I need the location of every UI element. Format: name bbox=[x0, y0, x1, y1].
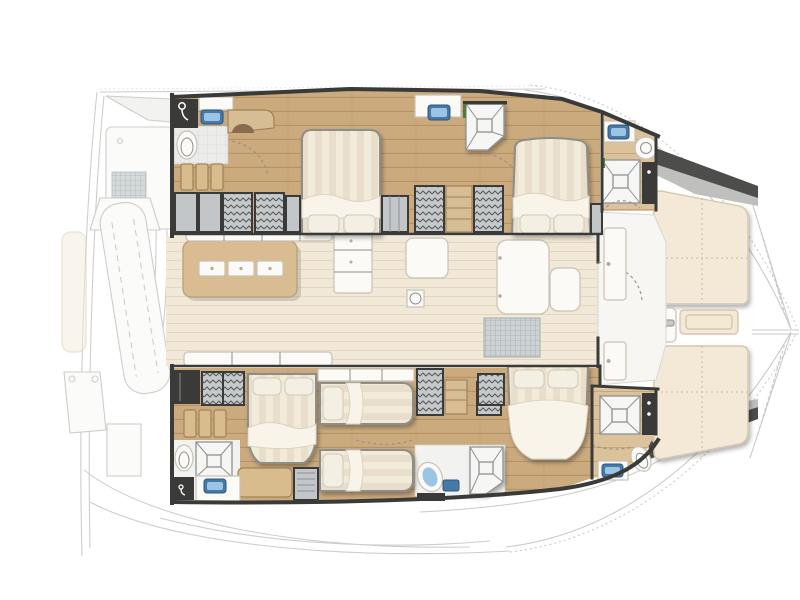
double-bed bbox=[302, 130, 380, 234]
pillow bbox=[323, 387, 343, 420]
port-hull bbox=[172, 366, 658, 503]
washbasin-bowl bbox=[611, 128, 626, 136]
shower-cabin bbox=[174, 99, 198, 128]
shelf-unit bbox=[446, 186, 472, 232]
hanging-locker bbox=[415, 186, 444, 232]
vanity-cabinet bbox=[199, 97, 233, 110]
sunpad-starboard bbox=[654, 191, 748, 304]
mirror bbox=[443, 480, 459, 491]
washbasin-bowl bbox=[431, 108, 447, 117]
shower-tray bbox=[602, 158, 640, 203]
stern-bench bbox=[62, 232, 86, 352]
dark-locker bbox=[174, 370, 200, 404]
pillow bbox=[308, 215, 339, 233]
transom-step-curve bbox=[160, 518, 490, 545]
toilet bbox=[635, 137, 657, 159]
locker bbox=[175, 193, 197, 232]
hanging-locker bbox=[417, 369, 443, 415]
side-locker bbox=[591, 204, 602, 234]
bench bbox=[238, 468, 292, 497]
double-bed bbox=[508, 366, 588, 459]
pillow bbox=[285, 378, 313, 395]
companionway-steps bbox=[181, 164, 223, 190]
double-bed bbox=[512, 138, 590, 234]
pillow bbox=[548, 370, 578, 388]
transom-locker bbox=[107, 424, 141, 476]
toilet bbox=[175, 445, 193, 471]
catamaran-floorplan bbox=[0, 0, 800, 600]
burner-plates bbox=[199, 261, 283, 276]
bowsprit bbox=[752, 330, 799, 334]
shelf-row bbox=[318, 369, 414, 381]
hanging-locker bbox=[474, 186, 503, 232]
starboard-aft-lockers bbox=[175, 193, 284, 232]
toilet bbox=[177, 131, 197, 159]
hanging-locker bbox=[478, 374, 504, 405]
single-bed bbox=[320, 383, 413, 424]
galley-island bbox=[183, 241, 301, 301]
transom-step-curve bbox=[90, 502, 510, 554]
pillow bbox=[344, 215, 375, 233]
deck-socket bbox=[407, 290, 424, 307]
hanging-locker bbox=[223, 193, 252, 232]
side-deck-band bbox=[106, 96, 172, 122]
bow-steps bbox=[680, 310, 738, 334]
tall-locker bbox=[642, 162, 656, 204]
saloon bbox=[166, 212, 666, 385]
pillow bbox=[514, 370, 544, 388]
side-locker bbox=[382, 196, 408, 232]
pillow bbox=[520, 215, 550, 233]
transom-edge-inner bbox=[89, 96, 104, 548]
side-locker bbox=[286, 196, 300, 232]
companionway-steps bbox=[184, 410, 226, 437]
hanging-locker bbox=[255, 193, 284, 232]
single-bed bbox=[320, 450, 413, 491]
pillow bbox=[323, 454, 343, 487]
pillow bbox=[554, 215, 584, 233]
double-bed bbox=[248, 374, 316, 463]
washbasin-bowl bbox=[207, 482, 223, 490]
fridge-unit bbox=[406, 238, 448, 278]
starboard-hull bbox=[172, 89, 658, 236]
floor-mat bbox=[484, 318, 540, 357]
shower-tray bbox=[600, 396, 640, 434]
sunpad-port bbox=[654, 346, 748, 459]
nav-seat bbox=[550, 268, 580, 311]
washbasin-bowl bbox=[204, 113, 220, 121]
helm-seat-mesh bbox=[112, 172, 146, 198]
shelf-unit bbox=[445, 380, 467, 414]
galley-counter bbox=[334, 226, 372, 293]
pillow bbox=[253, 378, 281, 395]
floorplan-svg bbox=[0, 0, 800, 600]
aft-settee bbox=[184, 352, 332, 366]
plant-accent bbox=[463, 104, 466, 118]
locker bbox=[199, 193, 221, 232]
dark-locker bbox=[174, 477, 194, 500]
